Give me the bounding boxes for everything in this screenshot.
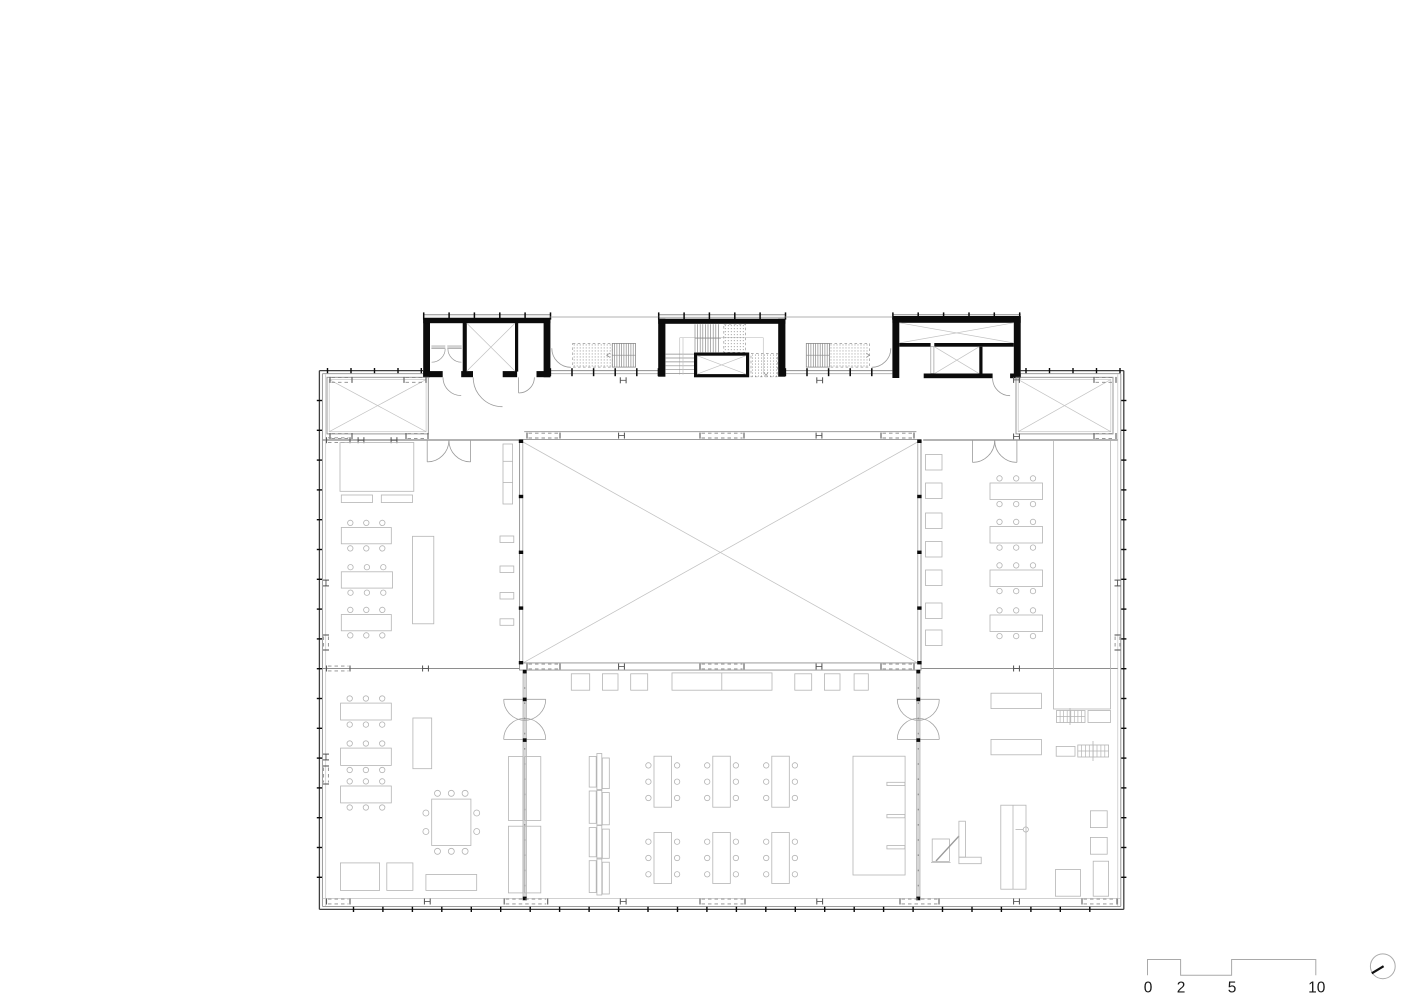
svg-text:2: 2 — [1177, 980, 1186, 997]
svg-text:0: 0 — [1144, 980, 1153, 997]
svg-text:10: 10 — [1308, 980, 1326, 997]
svg-text:5: 5 — [1228, 980, 1237, 997]
